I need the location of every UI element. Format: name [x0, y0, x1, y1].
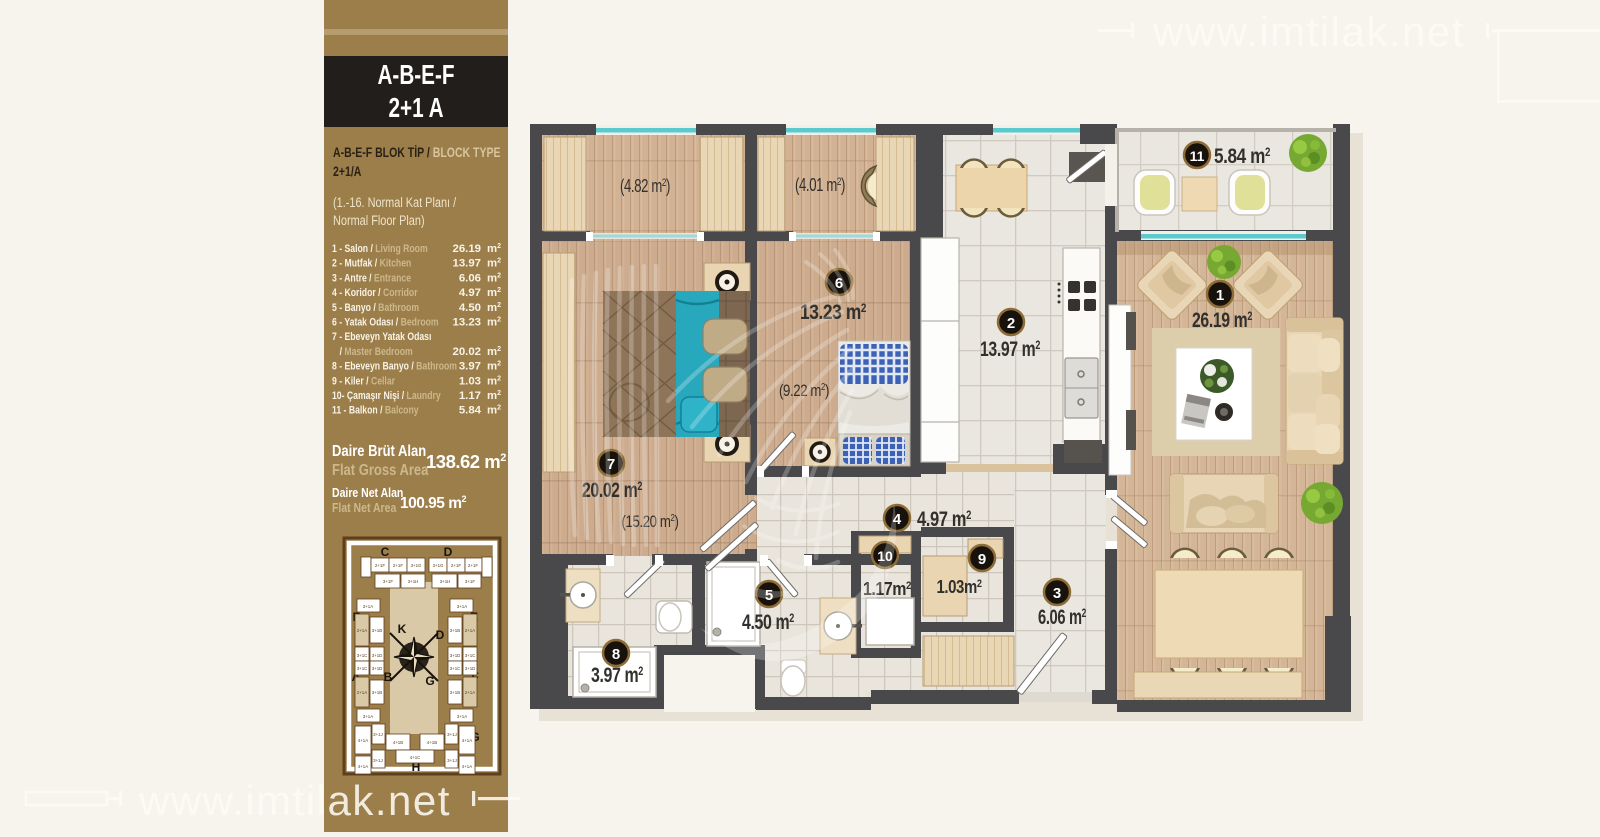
- svg-text:4+1B: 4+1B: [427, 740, 437, 745]
- svg-text:1.03m2: 1.03m2: [937, 577, 982, 597]
- svg-text:www.imtilak.net: www.imtilak.net: [138, 777, 451, 824]
- svg-text:4.50: 4.50: [459, 302, 481, 314]
- svg-text:4+1A: 4+1A: [358, 764, 368, 769]
- svg-text:www.imtilak.net: www.imtilak.net: [1152, 8, 1465, 55]
- svg-text:3+1C: 3+1C: [357, 653, 368, 658]
- svg-text:26.19 m2: 26.19 m2: [1192, 309, 1253, 332]
- svg-text:2+1A: 2+1A: [465, 690, 475, 695]
- svg-text:3+1C: 3+1C: [450, 666, 461, 671]
- svg-text:3+1A: 3+1A: [363, 714, 373, 719]
- svg-text:3 - Antre / Entrance: 3 - Antre / Entrance: [332, 272, 411, 284]
- svg-text:4.97: 4.97: [459, 287, 481, 299]
- svg-text:Flat Net Area: Flat Net Area: [332, 502, 397, 515]
- svg-text:3+1J: 3+1J: [447, 758, 457, 763]
- svg-text:3+1A: 3+1A: [363, 604, 373, 609]
- svg-text:4+1B: 4+1B: [393, 740, 403, 745]
- svg-text:(15.20 m2): (15.20 m2): [622, 512, 679, 531]
- svg-text:4 - Koridor / Corridor: 4 - Koridor / Corridor: [332, 287, 418, 299]
- svg-text:2+1F: 2+1F: [468, 563, 478, 568]
- svg-text:C: C: [381, 545, 390, 559]
- svg-text:1 - Salon / Living Room: 1 - Salon / Living Room: [332, 243, 428, 255]
- svg-text:4.50 m2: 4.50 m2: [742, 611, 795, 634]
- svg-text:3+1B: 3+1B: [372, 628, 382, 633]
- svg-text:1.17: 1.17: [459, 390, 481, 402]
- svg-text:9: 9: [978, 551, 986, 568]
- svg-text:2+1F: 2+1F: [375, 563, 385, 568]
- svg-text:2+1F: 2+1F: [451, 563, 461, 568]
- svg-text:3+1D: 3+1D: [372, 653, 383, 658]
- svg-text:3+1H: 3+1H: [440, 579, 451, 584]
- svg-text:A-B-E-F BLOK TİP / BLOCK TYPE: A-B-E-F BLOK TİP / BLOCK TYPE: [333, 144, 501, 161]
- svg-text:G: G: [425, 674, 434, 688]
- svg-text:3+1G: 3+1G: [411, 563, 422, 568]
- svg-text:Daire Brüt Alan: Daire Brüt Alan: [332, 443, 426, 460]
- svg-text:3+1B: 3+1B: [450, 628, 460, 633]
- svg-text:3+1A: 3+1A: [457, 714, 467, 719]
- svg-text:13.97: 13.97: [452, 258, 481, 270]
- svg-text:3+1D: 3+1D: [465, 666, 476, 671]
- svg-text:D: D: [444, 545, 453, 559]
- svg-text:3+1B: 3+1B: [372, 690, 382, 695]
- svg-text:3+1C: 3+1C: [357, 666, 368, 671]
- svg-text:4+1A: 4+1A: [462, 764, 472, 769]
- svg-text:2+1A: 2+1A: [465, 628, 475, 633]
- svg-text:13.97 m2: 13.97 m2: [980, 338, 1041, 361]
- svg-text:Daire Net Alan: Daire Net Alan: [332, 487, 403, 500]
- svg-text:K: K: [398, 622, 407, 636]
- svg-text:10- Çamaşır Nişi / Laundry: 10- Çamaşır Nişi / Laundry: [332, 390, 441, 402]
- svg-text:A-B-E-F: A-B-E-F: [377, 60, 454, 91]
- svg-text:26.19: 26.19: [452, 243, 481, 255]
- svg-text:4.97 m2: 4.97 m2: [917, 508, 972, 531]
- svg-text:1.03: 1.03: [459, 375, 481, 387]
- svg-text:B: B: [384, 670, 393, 684]
- svg-text:2 - Mutfak / Kitchen: 2 - Mutfak / Kitchen: [332, 258, 411, 270]
- svg-text:3+1D: 3+1D: [450, 653, 461, 658]
- svg-text:3+1H: 3+1H: [408, 579, 419, 584]
- svg-text:/ Master Bedroom: / Master Bedroom: [340, 346, 413, 358]
- svg-text:3.97 m2: 3.97 m2: [591, 664, 644, 687]
- svg-text:11 - Balkon / Balcony: 11 - Balkon / Balcony: [332, 405, 419, 417]
- svg-text:20.02: 20.02: [452, 346, 481, 358]
- svg-text:3+1A: 3+1A: [457, 604, 467, 609]
- svg-text:3+1C: 3+1C: [465, 653, 476, 658]
- svg-text:Flat Gross Area: Flat Gross Area: [332, 462, 429, 479]
- svg-text:3+1J: 3+1J: [373, 732, 383, 737]
- svg-text:2+1A: 2+1A: [357, 690, 367, 695]
- svg-text:2+1F: 2+1F: [393, 563, 403, 568]
- svg-text:100.95 m2: 100.95 m2: [400, 494, 467, 512]
- svg-text:5.84: 5.84: [459, 405, 482, 417]
- svg-text:5.84 m2: 5.84 m2: [1214, 145, 1271, 168]
- svg-text:3+1J: 3+1J: [373, 758, 383, 763]
- svg-text:1: 1: [1216, 287, 1224, 304]
- svg-text:9 - Kiler / Cellar: 9 - Kiler / Cellar: [332, 375, 395, 387]
- svg-text:3+1G: 3+1G: [433, 563, 444, 568]
- svg-text:3: 3: [1053, 585, 1061, 602]
- svg-text:3+1D: 3+1D: [372, 666, 383, 671]
- svg-text:13.23: 13.23: [452, 317, 481, 329]
- svg-text:(1.-16. Normal Kat Planı /: (1.-16. Normal Kat Planı /: [333, 195, 457, 211]
- svg-text:8: 8: [612, 646, 620, 663]
- svg-text:3.97: 3.97: [459, 361, 481, 373]
- svg-text:D: D: [436, 628, 445, 642]
- svg-text:2+1A: 2+1A: [357, 628, 367, 633]
- svg-text:7 - Ebeveyn Yatak Odası: 7 - Ebeveyn Yatak Odası: [332, 331, 432, 343]
- svg-text:Normal Floor Plan): Normal Floor Plan): [333, 213, 425, 229]
- svg-text:2+1 A: 2+1 A: [388, 93, 443, 124]
- svg-text:11: 11: [1190, 148, 1205, 164]
- svg-text:6 - Yatak Odası / Bedroom: 6 - Yatak Odası / Bedroom: [332, 316, 439, 328]
- svg-text:3+1J: 3+1J: [447, 732, 457, 737]
- svg-text:3+1B: 3+1B: [450, 690, 460, 695]
- svg-text:4+1A: 4+1A: [358, 738, 368, 743]
- svg-text:2+1/A: 2+1/A: [333, 164, 362, 180]
- svg-text:3+1F: 3+1F: [465, 579, 475, 584]
- svg-text:3+1F: 3+1F: [383, 579, 393, 584]
- svg-text:5 - Banyo / Bathroom: 5 - Banyo / Bathroom: [332, 302, 419, 314]
- svg-text:6.06 m2: 6.06 m2: [1038, 606, 1087, 629]
- svg-text:4+1A: 4+1A: [462, 738, 472, 743]
- svg-text:8 - Ebeveyn Banyo / Bathroom: 8 - Ebeveyn Banyo / Bathroom: [332, 361, 457, 373]
- svg-text:4+1C: 4+1C: [410, 755, 421, 760]
- svg-text:138.62 m2: 138.62 m2: [426, 451, 506, 472]
- svg-text:2: 2: [1007, 315, 1015, 332]
- svg-text:6.06: 6.06: [459, 272, 481, 284]
